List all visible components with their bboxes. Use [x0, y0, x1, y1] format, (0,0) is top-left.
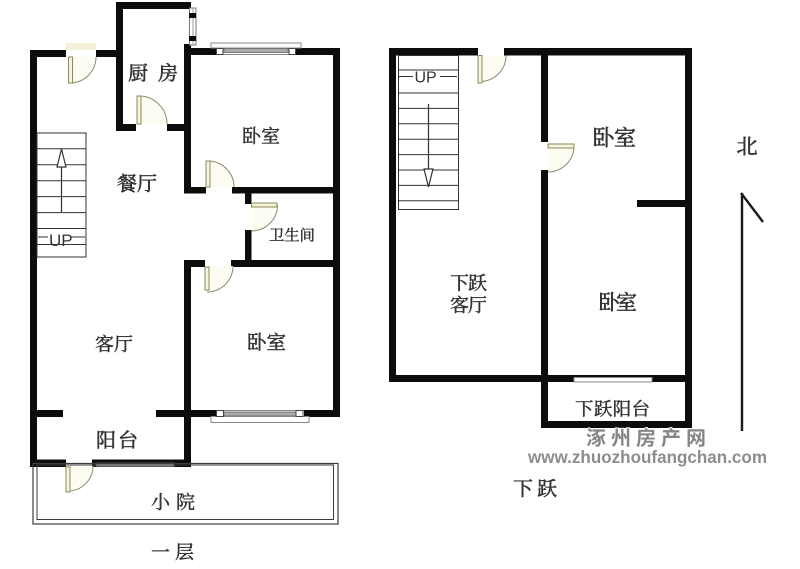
svg-text:UP: UP — [49, 231, 73, 250]
svg-text:UP: UP — [415, 70, 437, 87]
svg-text:www.zhuozhoufangchan.com: www.zhuozhoufangchan.com — [527, 447, 767, 467]
